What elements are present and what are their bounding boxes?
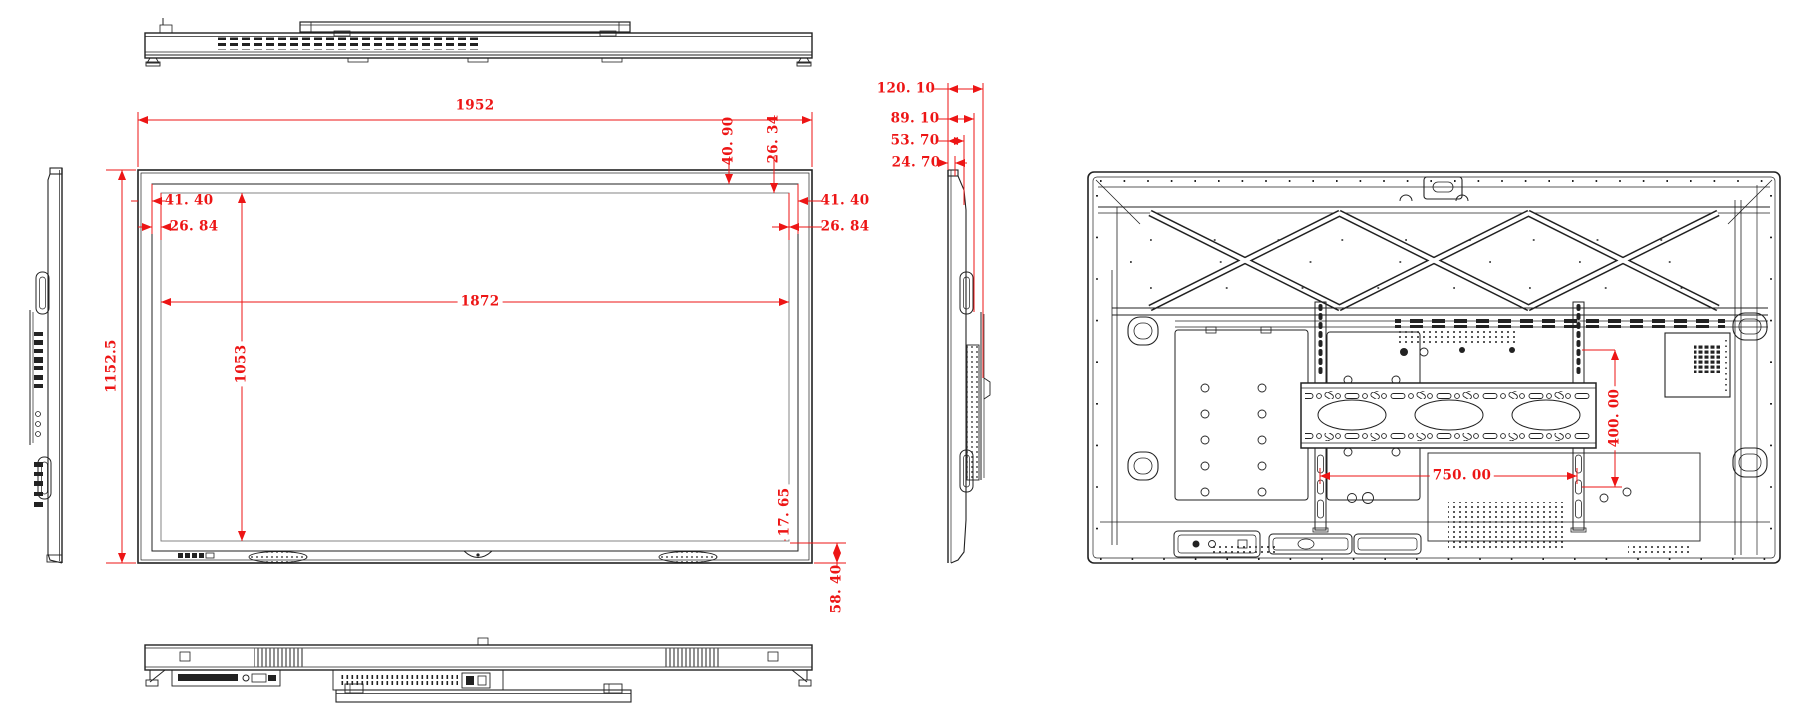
dim-depth-overall: 120. 10 <box>877 82 935 96</box>
dim-bezel-left-inner: 26. 84 <box>170 220 219 234</box>
dim-vesa-width: 750. 00 <box>1430 469 1494 483</box>
dim-bezel-bottom-inner: 17. 65 <box>778 485 792 540</box>
technical-drawing-canvas: 1952 1152.5 1872 1053 41. 40 26. 84 41. … <box>0 0 1813 726</box>
dim-overall-width: 1952 <box>456 99 495 113</box>
dim-bezel-bottom-outer: 58. 40 <box>830 565 844 614</box>
right-side-view <box>948 170 990 563</box>
dim-vesa-height: 400. 00 <box>1608 386 1622 450</box>
left-side-view <box>30 168 62 563</box>
dim-bezel-left-outer: 41. 40 <box>165 194 214 208</box>
top-view <box>145 18 812 66</box>
dim-display-width: 1872 <box>458 295 503 309</box>
dim-display-height: 1053 <box>235 342 249 387</box>
dim-depth-mid: 53. 70 <box>891 134 940 148</box>
dim-depth-back: 89. 10 <box>891 112 940 126</box>
dim-bezel-top-outer: 40. 90 <box>722 117 736 166</box>
dim-bezel-right-outer: 41. 40 <box>821 194 870 208</box>
dim-overall-height: 1152.5 <box>105 339 119 392</box>
rear-view <box>1088 172 1780 563</box>
dim-bezel-right-inner: 26. 84 <box>821 220 870 234</box>
drawing-linework <box>0 0 1813 726</box>
dimension-lines <box>106 83 1622 568</box>
dim-depth-front: 24. 70 <box>892 156 941 170</box>
bottom-view <box>145 638 812 702</box>
dim-bezel-top-inner: 26. 34 <box>767 115 781 164</box>
